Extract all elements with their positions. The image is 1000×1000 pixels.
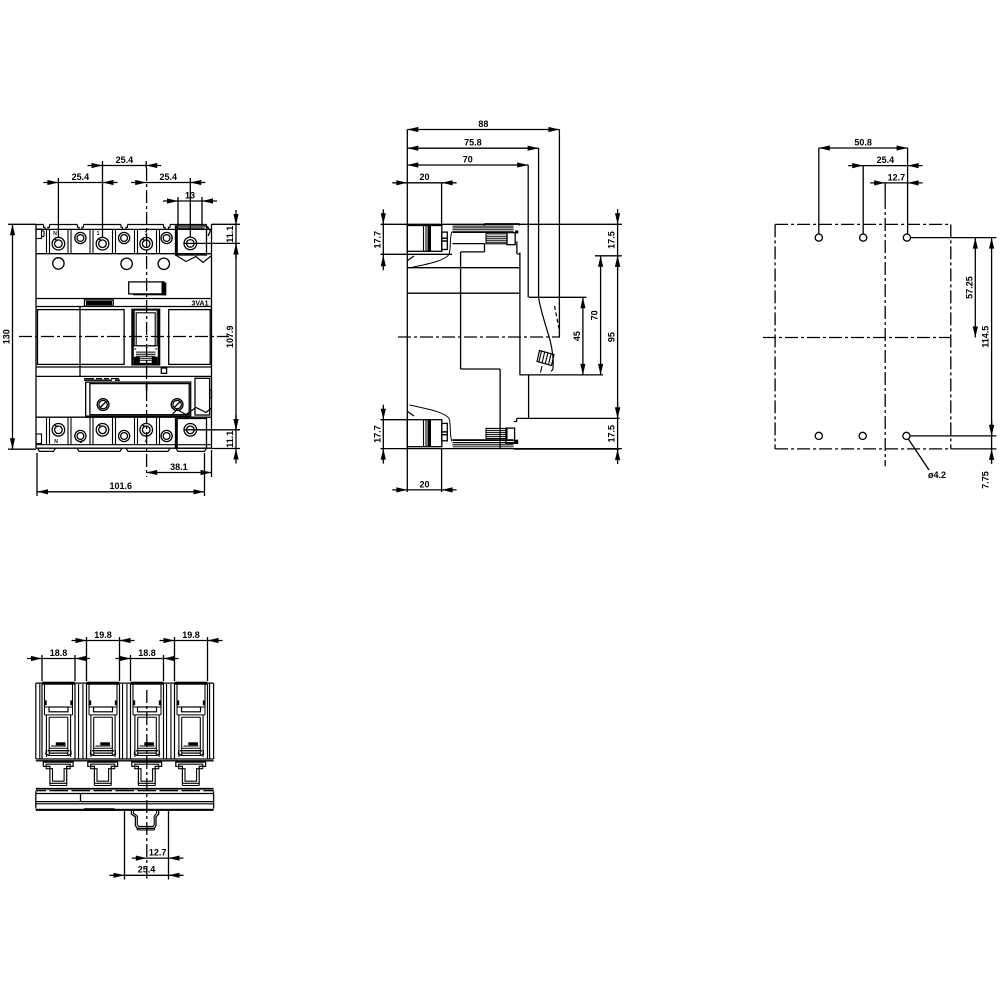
svg-text:75.8: 75.8 bbox=[464, 138, 482, 148]
svg-text:11.1: 11.1 bbox=[225, 226, 235, 243]
svg-text:70: 70 bbox=[590, 310, 600, 320]
svg-text:3: 3 bbox=[145, 231, 148, 237]
svg-text:1: 1 bbox=[97, 231, 100, 237]
svg-text:2: 2 bbox=[80, 439, 83, 445]
svg-text:19.8: 19.8 bbox=[182, 630, 200, 640]
svg-text:25.4: 25.4 bbox=[138, 865, 156, 875]
svg-text:114.5: 114.5 bbox=[981, 326, 991, 348]
svg-text:88: 88 bbox=[478, 119, 488, 129]
svg-text:SIEMENS: SIEMENS bbox=[90, 301, 109, 306]
svg-text:25.4: 25.4 bbox=[72, 172, 90, 182]
svg-text:18.8: 18.8 bbox=[138, 648, 156, 658]
svg-text:12.7: 12.7 bbox=[149, 848, 167, 858]
svg-text:130: 130 bbox=[2, 329, 12, 344]
svg-text:20: 20 bbox=[419, 172, 429, 182]
svg-text:95: 95 bbox=[607, 332, 617, 342]
svg-text:107.9: 107.9 bbox=[225, 325, 235, 348]
svg-text:ø4.2: ø4.2 bbox=[928, 470, 946, 480]
svg-text:70: 70 bbox=[463, 154, 473, 164]
svg-text:57.25: 57.25 bbox=[964, 276, 974, 299]
svg-text:18.8: 18.8 bbox=[50, 648, 68, 658]
svg-text:17.5: 17.5 bbox=[607, 231, 617, 249]
svg-text:25.4: 25.4 bbox=[116, 155, 134, 165]
svg-text:25.4: 25.4 bbox=[159, 172, 177, 182]
svg-text:17.7: 17.7 bbox=[372, 425, 382, 443]
svg-text:4: 4 bbox=[145, 439, 148, 445]
svg-text:19.8: 19.8 bbox=[94, 630, 112, 640]
svg-text:17.5: 17.5 bbox=[607, 425, 617, 443]
svg-text:25.4: 25.4 bbox=[877, 155, 895, 165]
svg-text:13: 13 bbox=[185, 190, 195, 200]
svg-text:N: N bbox=[54, 439, 58, 445]
svg-text:20: 20 bbox=[419, 479, 429, 489]
svg-text:45: 45 bbox=[572, 331, 582, 341]
svg-text:101.6: 101.6 bbox=[109, 481, 132, 491]
svg-text:7.75: 7.75 bbox=[981, 471, 991, 489]
svg-text:17.7: 17.7 bbox=[372, 231, 382, 249]
svg-text:3VA1: 3VA1 bbox=[192, 300, 209, 307]
svg-text:12.7: 12.7 bbox=[888, 172, 906, 182]
svg-text:50.8: 50.8 bbox=[854, 137, 872, 147]
svg-text:11.1: 11.1 bbox=[225, 431, 235, 448]
svg-text:38.1: 38.1 bbox=[170, 462, 188, 472]
svg-text:N: N bbox=[53, 231, 57, 237]
